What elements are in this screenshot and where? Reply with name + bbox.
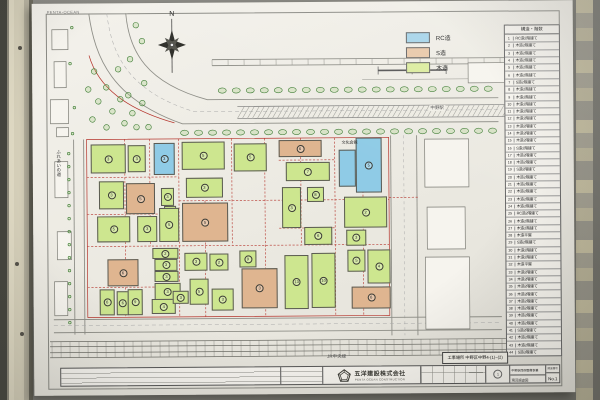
legend-row: S造 <box>406 45 451 60</box>
building-parcel: 5 <box>234 143 267 171</box>
project-name: 中野駅西側整備事業 <box>510 365 545 376</box>
rail-line-label: JR中央線 <box>327 354 346 360</box>
row-structure-label: 木造2階建て <box>514 87 536 93</box>
parcel-number: 13 <box>293 278 301 286</box>
row-number: 36 <box>507 292 516 296</box>
row-structure-label: 木造2階建て <box>516 298 538 304</box>
parcel-number: 5 <box>110 225 118 233</box>
building-parcel: 13 <box>284 255 308 309</box>
parcel-number: 6 <box>103 298 111 306</box>
row-structure-label: 木造2階建て <box>516 284 538 290</box>
parcel-number: 5 <box>201 218 209 226</box>
building-parcel: 3 <box>154 143 175 175</box>
building-parcel: 6 <box>304 227 332 245</box>
parcel-number: 4 <box>160 302 168 310</box>
parcel-number: 3 <box>200 184 208 192</box>
station-label: 中野駅 <box>429 105 445 111</box>
bolt-dot <box>20 332 24 336</box>
row-structure-label: S造2階建て <box>514 79 535 85</box>
company-cell: 五洋建設株式会社 PENTA OCEAN CONSTRUCTION <box>322 366 420 384</box>
row-structure-label: 木造2階建て <box>514 57 536 63</box>
row-number: 7 <box>505 80 514 84</box>
row-structure-label: 木造平屋 <box>515 233 531 239</box>
row-number: 42 <box>507 336 516 340</box>
parcel-number: 5 <box>165 221 173 229</box>
parcel-number: 2 <box>215 258 223 266</box>
row-number: 34 <box>507 277 516 281</box>
revision-mini-table <box>280 367 322 384</box>
building-parcel: 6 <box>100 289 115 315</box>
row-number: 12 <box>505 117 514 121</box>
row-number: 5 <box>505 66 514 70</box>
row-number: 20 <box>506 175 515 179</box>
legend-swatch <box>406 32 430 43</box>
titles-cell: 中野駅西側整備事業 現況調査図 <box>509 365 545 382</box>
parcel-number: 5 <box>136 195 144 203</box>
parcel-number: 7 <box>304 167 312 175</box>
row-number: 27 <box>506 226 515 230</box>
row-number: 33 <box>507 270 516 274</box>
parcel-number: 3 <box>177 293 185 301</box>
row-structure-label: 木造2階建て <box>516 305 538 311</box>
row-number: 31 <box>506 256 515 260</box>
building-parcel: 8 <box>307 187 324 202</box>
row-number: 41 <box>507 329 516 333</box>
parcel-number: 3 <box>104 155 112 163</box>
parcel-number: 3 <box>143 225 151 233</box>
revision-strip <box>61 367 280 386</box>
row-structure-label: 木造2階建て <box>515 138 537 144</box>
building-parcel: 5 <box>126 183 155 214</box>
building-parcel: 5 <box>356 137 382 192</box>
building-parcel: 3 <box>346 230 366 246</box>
parcel-number: 6 <box>296 144 304 152</box>
row-number: 11 <box>505 110 514 114</box>
row-structure-label: 木造2階建て <box>516 335 538 341</box>
parcel-number: 5 <box>246 153 254 161</box>
building-parcel: 3 <box>241 268 277 308</box>
building-parcel: 9 <box>239 250 256 267</box>
parcel-number: 6 <box>119 269 127 277</box>
parcel-number: 5 <box>199 152 207 160</box>
row-structure-label: 木造2階建て <box>515 160 537 166</box>
row-number: 28 <box>506 234 515 238</box>
legend-label: 木造 <box>436 63 448 72</box>
parcel-number: 9 <box>244 255 252 263</box>
row-number: 19 <box>506 168 515 172</box>
building-parcel: 3 <box>154 259 177 271</box>
row-number: 16 <box>506 146 515 150</box>
hall-label: 文化会館 <box>342 140 358 146</box>
row-number: 3 <box>505 51 514 55</box>
row-number: 1 <box>505 36 514 40</box>
parcel-number: 2 <box>161 249 169 257</box>
row-structure-label: 木造2階建て <box>515 196 537 202</box>
parcel-number: 3 <box>163 193 171 201</box>
row-structure-label: 木造2階建て <box>514 72 536 78</box>
building-parcel: 3 <box>161 188 174 206</box>
row-number: 38 <box>507 307 516 311</box>
legend-row: RC造 <box>406 30 451 45</box>
wall-pillar <box>0 0 33 400</box>
row-structure-label: 木造2階建て <box>515 181 537 187</box>
parcel-number: 8 <box>311 190 319 198</box>
row-number: 2 <box>505 44 514 48</box>
drawing-sheet: N 33355675353338253556366692333433253931… <box>32 0 576 396</box>
row-number: 13 <box>505 124 514 128</box>
penta-ocean-logo-icon <box>337 368 351 382</box>
building-parcel: 3 <box>155 271 179 282</box>
parcel-number: 6 <box>367 294 375 302</box>
legend-label: RC造 <box>436 33 451 42</box>
sheet-number: No.1 <box>546 373 559 384</box>
parcel-number: 3 <box>160 155 168 163</box>
row-number: 39 <box>507 314 516 318</box>
row-structure-label: 木造2階建て <box>514 116 536 122</box>
stamp-cell: 1 <box>485 366 509 383</box>
row-structure-label: S造2階建て <box>515 240 536 246</box>
building-parcel: 3 <box>99 181 124 209</box>
row-number: 9 <box>505 95 514 99</box>
parcel-number: 3 <box>162 261 170 269</box>
building-parcel: 7 <box>286 162 330 181</box>
parcel-number: 5 <box>195 288 203 296</box>
building-parcel: 6 <box>352 286 391 308</box>
company-name-en: PENTA OCEAN CONSTRUCTION <box>354 377 405 381</box>
row-number: 26 <box>506 219 515 223</box>
legend-label: S造 <box>436 48 446 57</box>
building-parcel: 2 <box>344 196 387 227</box>
title-block: 五洋建設株式会社 PENTA OCEAN CONSTRUCTION 1 中野駅西… <box>60 364 560 386</box>
parcel-number: 10 <box>320 276 328 284</box>
row-number: 35 <box>507 285 516 289</box>
legend-swatch <box>406 62 430 73</box>
building-parcel: 3 <box>173 291 189 304</box>
sheet-number-cell: 図面番号 No.1 <box>545 365 559 382</box>
building-parcel: 10 <box>311 253 335 308</box>
building-parcel: 5 <box>190 279 209 305</box>
row-number: 4 <box>505 59 514 63</box>
stamp-mark: 1 <box>493 370 502 379</box>
row-structure-label: 木造2階建て <box>516 313 538 319</box>
building-parcel: 6 <box>279 140 322 157</box>
legend-row: 木造 <box>406 60 451 75</box>
row-structure-label: 木造2階建て <box>515 152 537 158</box>
row-structure-label: 木造2階建て <box>515 218 537 224</box>
row-number: 6 <box>505 73 514 77</box>
structure-table: 構造・階数 1RC造2階建て2木造2階建て3木造2階建て4木造2階建て5木造2階… <box>504 24 562 356</box>
building-parcel: 3 <box>137 216 157 242</box>
row-number: 21 <box>506 183 515 187</box>
row-number: 17 <box>506 153 515 157</box>
tape-strip <box>576 0 593 400</box>
bolt-dot <box>18 46 22 50</box>
parcel-number: 3 <box>133 155 141 163</box>
building-parcel: 5 <box>97 216 130 242</box>
row-structure-label: 木造2階建て <box>514 50 536 56</box>
table-header: 構造・階数 <box>505 25 559 34</box>
row-number: 22 <box>506 190 515 194</box>
parcel-number: 3 <box>288 204 296 212</box>
building-parcel: 5 <box>159 208 179 242</box>
table-row: 44S造3階建て <box>507 348 561 356</box>
building-parcel: 4 <box>367 249 390 283</box>
row-number: 15 <box>506 139 515 143</box>
row-structure-label: 木造2階建て <box>515 225 537 231</box>
parcel-number: 3 <box>107 191 115 199</box>
row-number: 29 <box>506 241 515 245</box>
parcel-number: 9 <box>131 298 139 306</box>
row-structure-label: 木造2階建て <box>516 269 538 275</box>
drawing-title: 現況調査図 <box>510 376 545 384</box>
parcel-number: 5 <box>352 257 360 265</box>
row-structure-label: 木造2階建て <box>515 247 537 253</box>
row-structure-label: RC造2階建て <box>515 211 538 217</box>
row-number: 43 <box>507 343 516 347</box>
row-structure-label: 木造2階建て <box>516 342 538 348</box>
approval-grid <box>420 366 486 383</box>
building-parcel: 2 <box>152 248 178 259</box>
row-number: 25 <box>506 212 515 216</box>
bolt-dot <box>15 262 19 266</box>
row-structure-label: S造2階建て <box>516 327 537 333</box>
row-number: 8 <box>505 88 514 92</box>
building-parcel: 3 <box>91 144 126 173</box>
legend-swatch <box>406 47 430 58</box>
row-structure-label: S造2階建て <box>515 145 536 151</box>
sheet-corner-text: PENTA-OCEAN <box>47 10 80 15</box>
table-rows: 1RC造2階建て2木造2階建て3木造2階建て4木造2階建て5木造2階建て6木造2… <box>505 34 561 355</box>
parcel-number: 3 <box>164 287 172 295</box>
row-structure-label: 木造2階建て <box>516 320 538 326</box>
parcel-number: 3 <box>192 258 200 266</box>
row-structure-label: 木造2階建て <box>514 101 536 107</box>
building-parcel: 3 <box>128 145 146 172</box>
row-number: 18 <box>506 161 515 165</box>
row-structure-label: 木造2階建て <box>516 276 538 282</box>
row-structure-label: 木造2階建て <box>515 174 537 180</box>
row-structure-label: 木造2階建て <box>515 203 537 209</box>
row-structure-label: 木造2階建て <box>514 108 536 114</box>
site-location-box: 工事場所 中野区中野4-(1)~(2) <box>442 352 508 364</box>
building-parcel: 3 <box>186 178 223 198</box>
row-number: 44 <box>507 350 516 354</box>
building-parcel: 6 <box>107 259 138 286</box>
row-number: 30 <box>506 248 515 252</box>
row-number: 40 <box>507 321 516 325</box>
building-parcel: 2 <box>209 254 228 271</box>
parcel-number: 2 <box>362 208 370 216</box>
parcel-number: 6 <box>314 232 322 240</box>
row-structure-label: RC造2階建て <box>514 35 537 41</box>
row-structure-label: 木造2階建て <box>514 43 536 49</box>
row-structure-label: 木造2階建て <box>515 254 537 260</box>
sheet-number-label: 図面番号 <box>546 365 559 373</box>
building-parcel: 9 <box>128 289 143 315</box>
row-structure-label: 木造平屋 <box>515 262 531 268</box>
row-number: 24 <box>506 204 515 208</box>
parcel-number: 6 <box>119 299 127 307</box>
row-structure-label: S造2階建て <box>515 167 536 173</box>
row-number: 37 <box>507 299 516 303</box>
company-name: 五洋建設株式会社 <box>354 368 405 377</box>
parcel-number: 3 <box>219 296 227 304</box>
row-structure-label: 木造2階建て <box>515 130 537 136</box>
building-parcel: 3 <box>212 288 234 310</box>
row-number: 23 <box>506 197 515 201</box>
parcel-number: 3 <box>256 284 264 292</box>
row-structure-label: 木造2階建て <box>515 189 537 195</box>
parcel-number: 3 <box>163 272 171 280</box>
building-parcel: 3 <box>282 187 301 228</box>
building-parcel <box>339 150 356 187</box>
row-number: 10 <box>505 102 514 106</box>
row-number: 32 <box>506 263 515 267</box>
row-structure-label: 木造2階建て <box>514 65 536 71</box>
parcel-number: 3 <box>352 234 360 242</box>
row-structure-label: 木造2階建て <box>514 94 536 100</box>
legend: RC造S造木造 <box>406 30 451 75</box>
parcel-number: 4 <box>375 262 383 270</box>
building-parcels: 3335567535333825355636669233343325393131… <box>32 0 576 396</box>
photo-of-site-plan: { "corner_text": "PENTA-OCEAN", "legend"… <box>0 0 600 400</box>
building-parcel: 5 <box>347 250 365 272</box>
parcel-number: 5 <box>365 161 373 169</box>
building-parcel: 3 <box>184 253 207 271</box>
building-parcel: 5 <box>182 203 228 242</box>
row-structure-label: S造3階建て <box>516 349 537 355</box>
row-number: 14 <box>506 132 515 136</box>
row-structure-label: 木造2階建て <box>514 123 536 129</box>
building-parcel: 5 <box>182 142 225 170</box>
row-structure-label: 木造2階建て <box>516 291 538 297</box>
street-name-label: ふれあいの道 <box>56 150 62 177</box>
